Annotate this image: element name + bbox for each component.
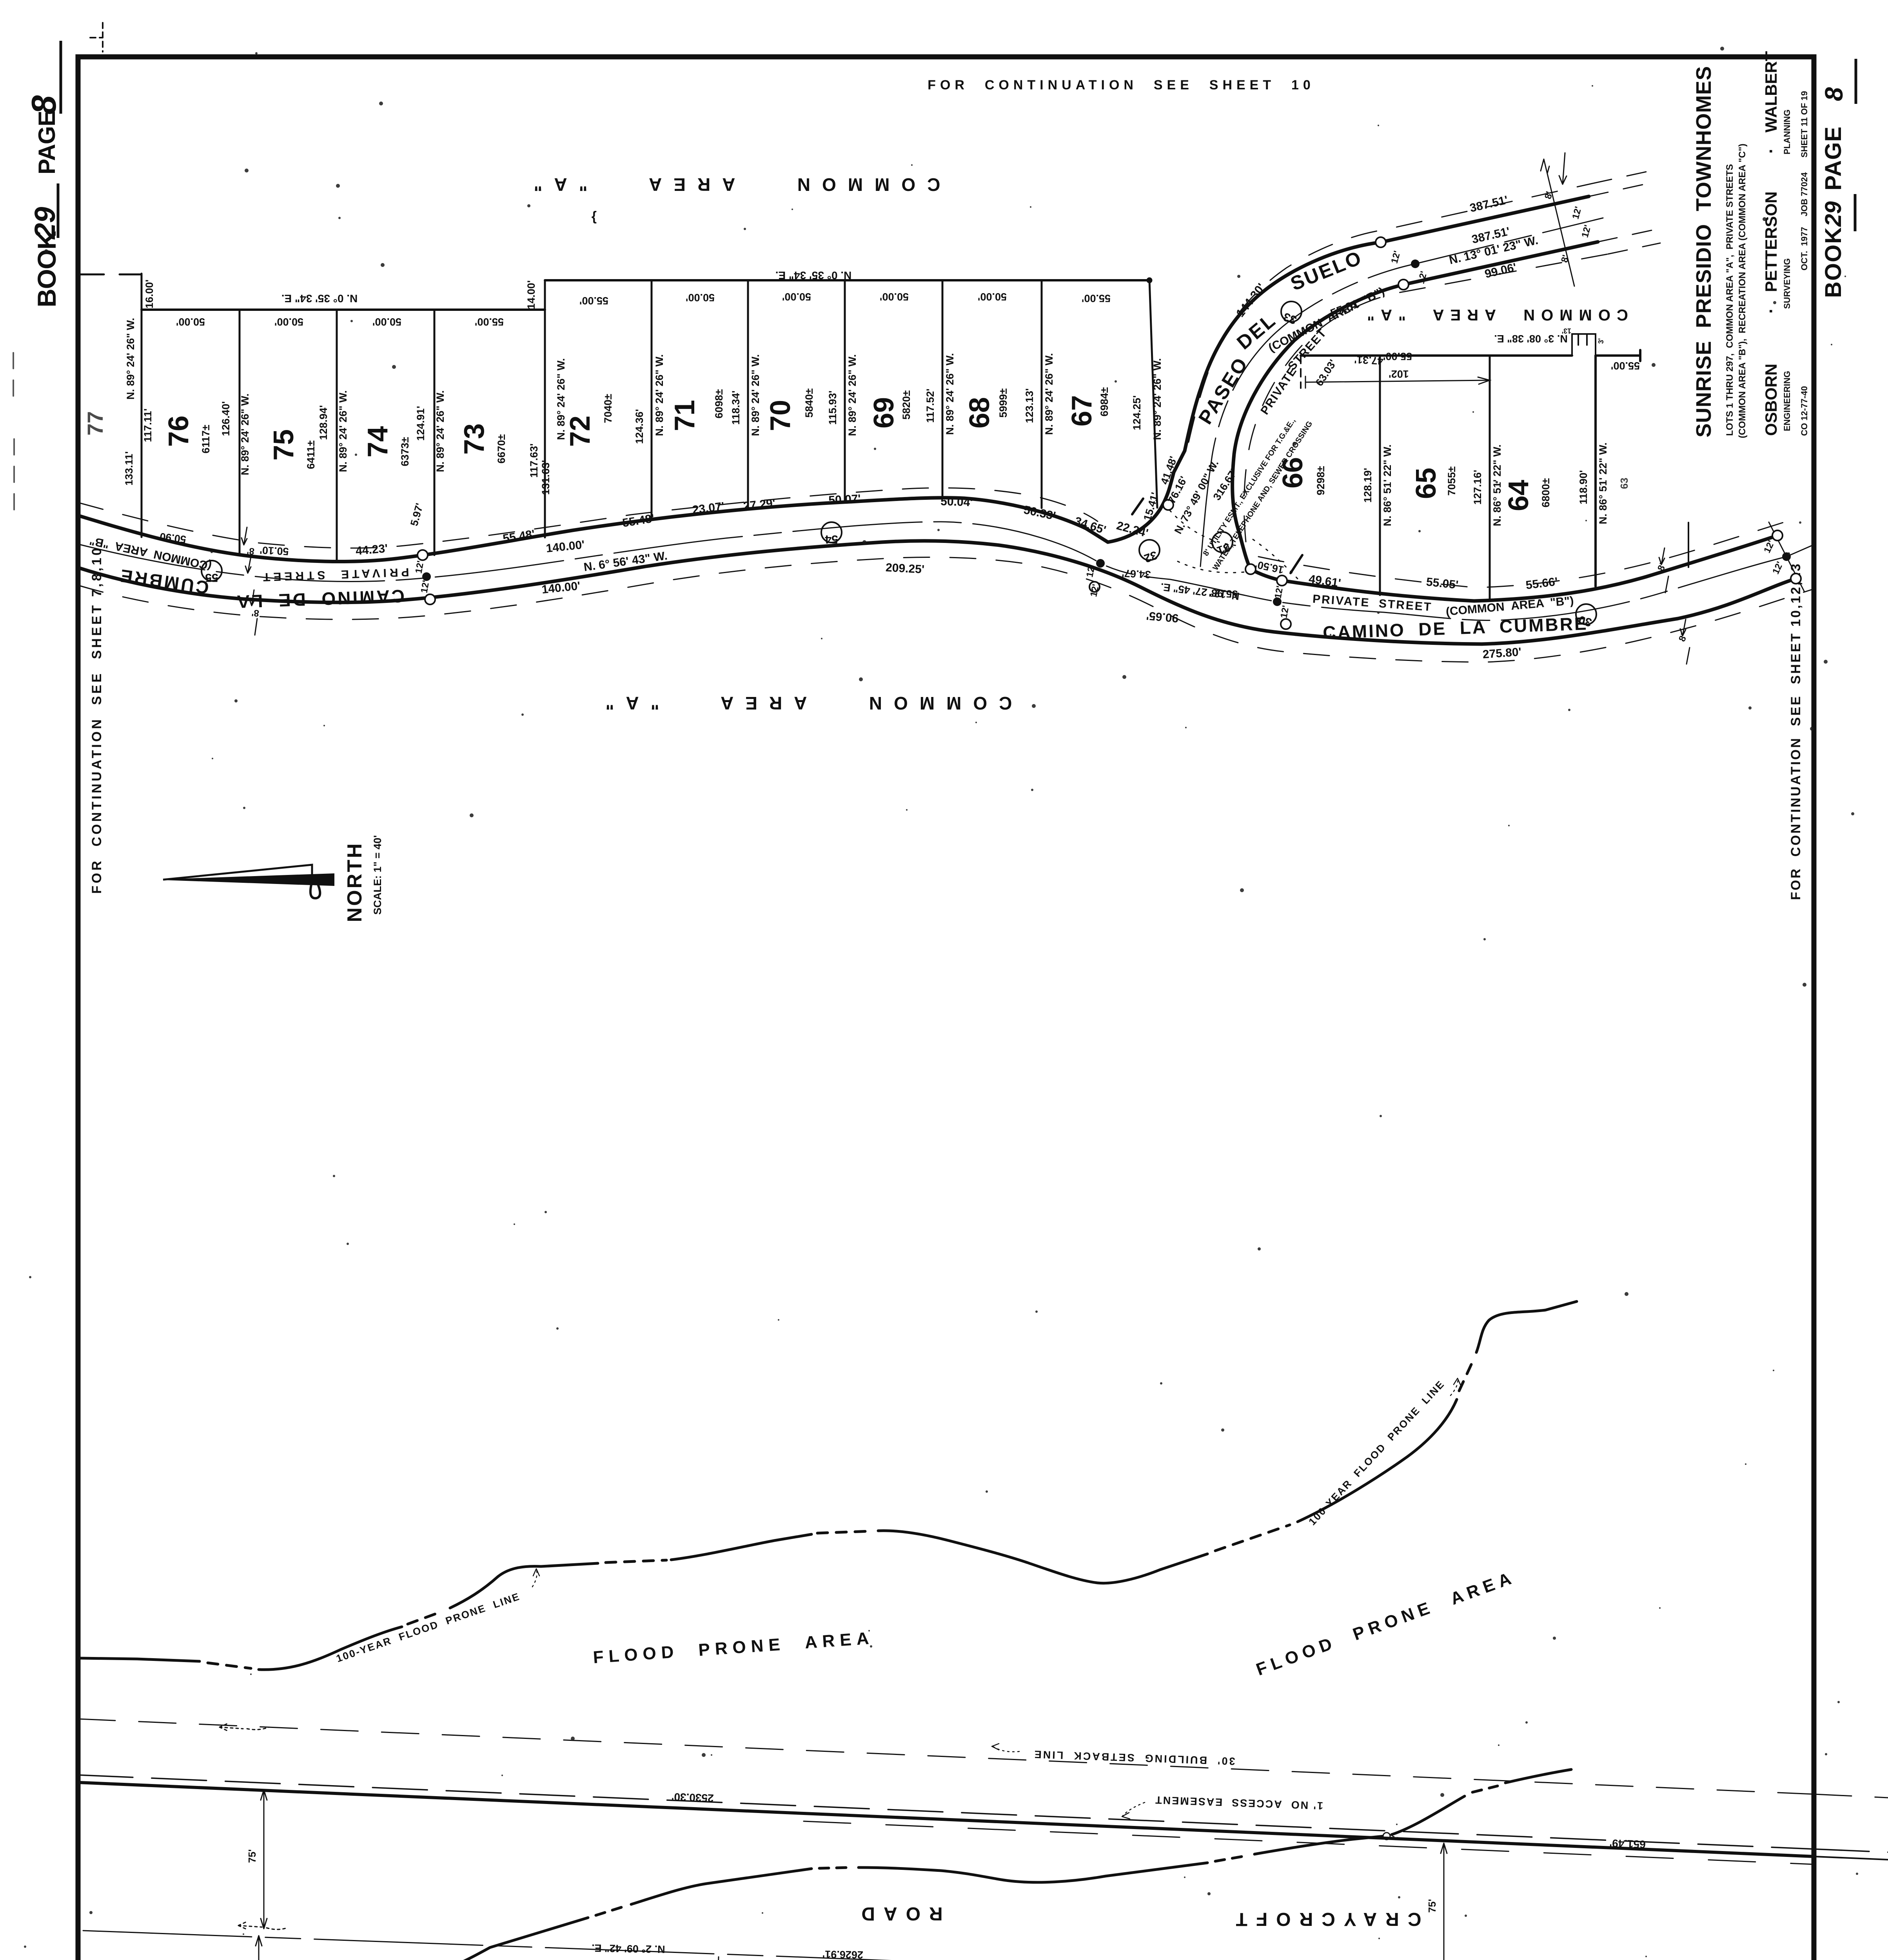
svg-text:115.93': 115.93' [827, 390, 839, 425]
svg-text:SHEET 11 OF 19: SHEET 11 OF 19 [1799, 91, 1809, 158]
svg-text:ENGINEERING: ENGINEERING [1782, 371, 1792, 431]
svg-text:73: 73 [459, 423, 490, 455]
svg-text:PAGE: PAGE [34, 111, 60, 174]
svg-text:OSBORN: OSBORN [1762, 364, 1780, 436]
svg-text:50.00': 50.00' [686, 292, 715, 303]
svg-text:LOTS 1 THRU 297, COMMON AREA: LOTS 1 THRU 297, COMMON AREA "A", PRIVAT… [1725, 164, 1735, 436]
svg-text:N. 89° 24' 26" W.: N. 89° 24' 26" W. [239, 394, 251, 475]
svg-text:14.00': 14.00' [525, 280, 537, 309]
svg-text:12': 12' [414, 560, 426, 574]
svg-text:6670±: 6670± [496, 434, 507, 463]
svg-text:128.19': 128.19' [1362, 468, 1374, 503]
svg-text:7040±: 7040± [602, 394, 614, 423]
svg-text:133.11': 133.11' [123, 451, 135, 486]
svg-text:N. 86° 51' 22" W.: N. 86° 51' 22" W. [1491, 445, 1503, 526]
svg-text:BOOK: BOOK [32, 231, 61, 307]
svg-text:64: 64 [1503, 480, 1534, 511]
svg-text:16.00': 16.00' [143, 279, 155, 309]
svg-text:34.67': 34.67' [1122, 567, 1151, 581]
svg-text:2530.30': 2530.30' [671, 1791, 714, 1804]
svg-text:N. 89° 24' 26" W.: N. 89° 24' 26" W. [1151, 358, 1163, 440]
svg-text:67: 67 [1066, 395, 1098, 426]
svg-text:75: 75 [268, 429, 300, 461]
svg-text:117.11': 117.11' [142, 408, 154, 442]
svg-text:6800±: 6800± [1540, 478, 1552, 507]
svg-text:N. 86° 51' 22" W.: N. 86° 51' 22" W. [1382, 445, 1393, 526]
svg-text:7055±: 7055± [1446, 466, 1458, 495]
svg-text:N. 89° 24' 26" W.: N. 89° 24' 26" W. [846, 354, 858, 436]
svg-text:N. 89° 24' 26" W.: N. 89° 24' 26" W. [434, 390, 446, 472]
svg-text:55.00': 55.00' [579, 295, 608, 307]
svg-text:55.00': 55.00' [475, 316, 504, 328]
svg-text:50.00': 50.00' [274, 316, 303, 328]
svg-text:N. 0° 35' 34" E.: N. 0° 35' 34" E. [281, 292, 358, 305]
svg-text:6411±: 6411± [305, 440, 317, 469]
svg-text:50.07': 50.07' [828, 492, 861, 507]
svg-text:55.00': 55.00' [1082, 292, 1111, 304]
svg-text:N. 89° 24' 26" W.: N. 89° 24' 26" W. [125, 318, 136, 400]
svg-text:68: 68 [964, 397, 995, 428]
svg-text:N. 89° 24' 26" W.: N. 89° 24' 26" W. [654, 354, 665, 436]
svg-text:55.00': 55.00' [1383, 350, 1412, 362]
svg-text:5820±: 5820± [900, 390, 912, 419]
svg-text:54: 54 [825, 533, 838, 546]
svg-text:JOB 77024: JOB 77024 [1799, 172, 1809, 216]
svg-text:128.94': 128.94' [318, 405, 329, 440]
svg-text:N. 0° 35' 34" E.: N. 0° 35' 34" E. [775, 269, 852, 281]
svg-text:117.63': 117.63' [528, 443, 540, 478]
svg-text:29: 29 [1821, 201, 1846, 227]
svg-text:55.98': 55.98' [1209, 587, 1238, 600]
svg-text:118.90': 118.90' [1578, 470, 1589, 505]
svg-text:PLANNING: PLANNING [1782, 109, 1792, 154]
svg-text:131.63': 131.63' [540, 460, 552, 495]
svg-text:124.36': 124.36' [634, 409, 645, 444]
svg-text:69: 69 [868, 397, 900, 428]
svg-text:13': 13' [1562, 327, 1571, 335]
svg-text:}: } [592, 211, 597, 225]
svg-text:OCT. 1977: OCT. 1977 [1799, 227, 1809, 270]
svg-text:77: 77 [83, 411, 107, 436]
svg-text:72: 72 [565, 416, 596, 447]
svg-text:12': 12' [1279, 604, 1291, 619]
svg-text:CO 12-77-40: CO 12-77-40 [1799, 386, 1809, 436]
svg-text:·: · [1761, 308, 1781, 314]
svg-text:·: · [1761, 148, 1781, 154]
svg-text:SCALE: 1" = 40': SCALE: 1" = 40' [372, 835, 383, 915]
svg-text:12': 12' [419, 579, 432, 594]
svg-text:N. 89° 24' 26" W.: N. 89° 24' 26" W. [337, 390, 349, 472]
svg-text:123.13': 123.13' [1024, 388, 1035, 423]
svg-text:BOOK: BOOK [1821, 227, 1846, 298]
svg-text:N. 89° 24' 26" W.: N. 89° 24' 26" W. [750, 354, 761, 436]
svg-text:65: 65 [1411, 468, 1442, 499]
svg-text:N. 89° 24' 26" W.: N. 89° 24' 26" W. [555, 358, 567, 440]
svg-text:2626.91': 2626.91' [822, 1948, 864, 1960]
svg-text:70: 70 [765, 400, 796, 431]
svg-text:N. 86° 51' 22" W.: N. 86° 51' 22" W. [1597, 443, 1609, 524]
svg-text:SUNRISE PRESIDIO TOWNHOMES: SUNRISE PRESIDIO TOWNHOMES [1692, 66, 1716, 437]
svg-text:74: 74 [362, 426, 394, 457]
svg-text:50.10': 50.10' [260, 544, 289, 557]
svg-text:209.25': 209.25' [885, 561, 924, 576]
svg-text:NORTH: NORTH [343, 842, 366, 922]
svg-text:5840±: 5840± [803, 388, 815, 417]
svg-text:FOR CONTINUATION SEE SHEET: FOR CONTINUATION SEE SHEET 10,12,13 [1788, 562, 1803, 900]
svg-text:8': 8' [247, 545, 255, 557]
svg-text:55.00': 55.00' [1611, 360, 1640, 372]
svg-text:50.00': 50.00' [176, 316, 205, 328]
svg-text:47.31': 47.31' [1354, 354, 1383, 367]
svg-text:(COMMON AREA "B"), RECREATION: (COMMON AREA "B"), RECREATION AREA (COMM… [1737, 143, 1748, 438]
svg-text:76: 76 [163, 416, 194, 447]
svg-text:COMMON AREA "A": COMMON AREA "A" [1361, 306, 1628, 323]
svg-text:50.00': 50.00' [372, 316, 401, 328]
svg-text:71: 71 [669, 400, 701, 431]
svg-text:PETTERSON: PETTERSON [1762, 191, 1780, 292]
svg-text:63: 63 [1618, 478, 1630, 489]
svg-text:50.00': 50.00' [880, 291, 909, 303]
svg-text:N. 2° 09' 42" E.: N. 2° 09' 42" E. [592, 1942, 665, 1955]
svg-text:3': 3' [1597, 338, 1605, 344]
svg-text:5999±: 5999± [997, 388, 1009, 417]
svg-text:PAGE: PAGE [1821, 126, 1846, 191]
svg-text:126.40': 126.40' [220, 401, 232, 436]
svg-text:50.00': 50.00' [782, 291, 811, 303]
svg-text:6984±: 6984± [1098, 387, 1110, 416]
svg-text:COMMON AREA "A": COMMON AREA "A" [594, 693, 1012, 713]
svg-text:N. 3° 08' 38" E.: N. 3° 08' 38" E. [1494, 333, 1568, 345]
svg-text:CRAYCROFT: CRAYCROFT [1227, 1909, 1421, 1929]
svg-text:127.16': 127.16' [1472, 470, 1483, 505]
svg-text:6117±: 6117± [200, 425, 212, 454]
svg-text:75': 75' [1426, 1899, 1438, 1913]
svg-text:275.80': 275.80' [1482, 646, 1522, 661]
svg-text:124.91': 124.91' [415, 406, 427, 441]
svg-text:12': 12' [1273, 585, 1285, 599]
svg-text:6098±: 6098± [713, 389, 725, 418]
svg-text:8: 8 [1820, 87, 1848, 101]
svg-text:9298±: 9298± [1315, 466, 1327, 495]
svg-text:N. 89° 24' 26" W.: N. 89° 24' 26" W. [944, 353, 956, 435]
svg-text:COMMON AREA "A": COMMON AREA "A" [522, 174, 940, 195]
svg-text:8: 8 [24, 95, 63, 114]
svg-text:117.52': 117.52' [924, 388, 936, 423]
svg-text:6373±: 6373± [399, 437, 411, 466]
svg-text:651.49': 651.49' [1609, 1837, 1646, 1850]
svg-text:N. 89° 24' 26" W.: N. 89° 24' 26" W. [1043, 353, 1055, 435]
svg-text:124.25': 124.25' [1131, 395, 1143, 430]
svg-text:29: 29 [29, 207, 61, 240]
svg-text:8': 8' [251, 607, 260, 619]
svg-text:ROAD: ROAD [853, 1903, 942, 1924]
svg-text:102': 102' [1389, 368, 1409, 380]
svg-text:75': 75' [246, 1849, 258, 1863]
svg-text:118.34': 118.34' [730, 390, 742, 425]
svg-text:FOR CONTINUATION SEE SHEET: FOR CONTINUATION SEE SHEET 10 [928, 78, 1315, 93]
svg-text:50.00': 50.00' [978, 291, 1007, 303]
svg-text:WALBERT: WALBERT [1762, 51, 1780, 132]
svg-text:FOR CONTINUATION SEE SHEET: FOR CONTINUATION SEE SHEET 7,8,10 [89, 546, 104, 894]
svg-text:SURVEYING: SURVEYING [1782, 258, 1792, 309]
svg-text:50.04': 50.04' [940, 495, 973, 509]
